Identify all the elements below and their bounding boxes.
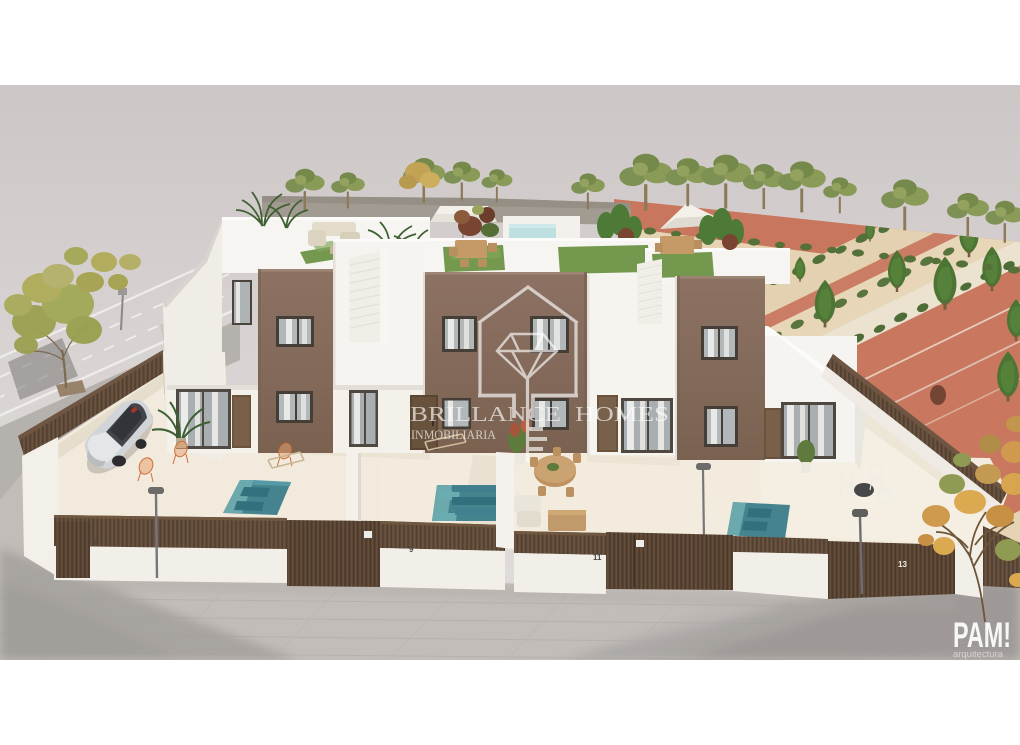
svg-text:13: 13 <box>898 560 907 569</box>
svg-text:BRILLANCE: BRILLANCE <box>410 402 561 426</box>
svg-text:HOMES: HOMES <box>575 402 669 426</box>
svg-text:7: 7 <box>93 539 98 548</box>
svg-text:11: 11 <box>593 553 602 562</box>
svg-text:9: 9 <box>409 545 414 554</box>
svg-text:INMOBILIARIA: INMOBILIARIA <box>411 427 497 442</box>
svg-text:arquitectura: arquitectura <box>953 649 1004 660</box>
